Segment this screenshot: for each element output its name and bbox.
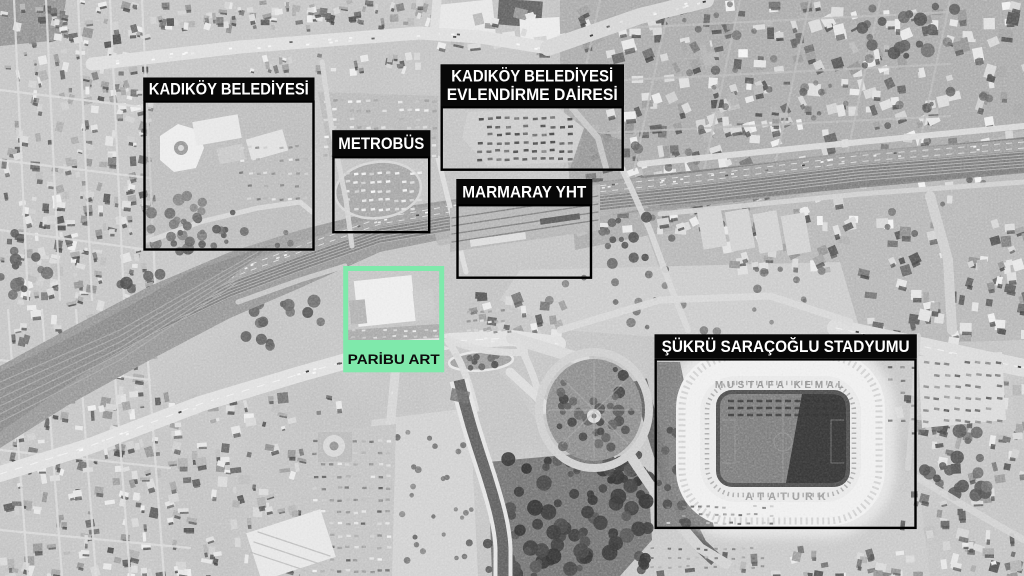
svg-text:KADIKÖY BELEDİYESİ: KADIKÖY BELEDİYESİ bbox=[451, 66, 613, 85]
svg-text:METROBÜS: METROBÜS bbox=[338, 134, 424, 153]
svg-text:PARİBU ART: PARİBU ART bbox=[348, 351, 440, 368]
svg-text:ŞÜKRÜ SARAÇOĞLU STADYUMU: ŞÜKRÜ SARAÇOĞLU STADYUMU bbox=[662, 337, 910, 356]
svg-text:MARMARAY YHT: MARMARAY YHT bbox=[462, 183, 586, 201]
svg-text:KADIKÖY BELEDİYESİ: KADIKÖY BELEDİYESİ bbox=[149, 80, 309, 99]
svg-text:EVLENDİRME DAİRESİ: EVLENDİRME DAİRESİ bbox=[447, 86, 618, 104]
